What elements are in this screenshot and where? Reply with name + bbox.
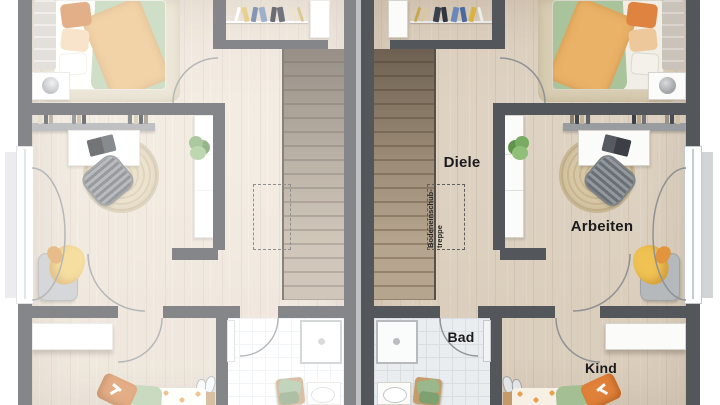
kind-door-arc	[556, 318, 600, 362]
bedroom-door-arc	[500, 58, 545, 103]
bath-door-arc	[240, 318, 278, 356]
kind-door-arc	[118, 318, 162, 362]
office-door-arc	[573, 254, 630, 311]
room-label-bad: Bad	[432, 329, 490, 345]
room-label-arbeiten: Arbeiten	[560, 218, 644, 235]
floorplan: Bodeneinschub- treppe	[0, 0, 720, 405]
door-swing-arcs	[4, 0, 358, 405]
window-casement-arc-top	[32, 168, 65, 234]
bedroom-door-arc	[173, 58, 218, 103]
window-casement-arc-top	[653, 168, 686, 234]
room-label-kind: Kind	[572, 360, 630, 376]
window-casement-arc-bottom	[653, 234, 686, 300]
unit-left: Bodeneinschub- treppe	[4, 0, 358, 405]
room-label-diele: Diele	[430, 154, 494, 171]
office-door-arc	[88, 254, 145, 311]
window-casement-arc-bottom	[32, 234, 65, 300]
party-wall-gap	[356, 0, 361, 405]
unit-right: Bodeneinschub- treppe	[360, 0, 714, 405]
door-swing-arcs	[360, 0, 714, 405]
